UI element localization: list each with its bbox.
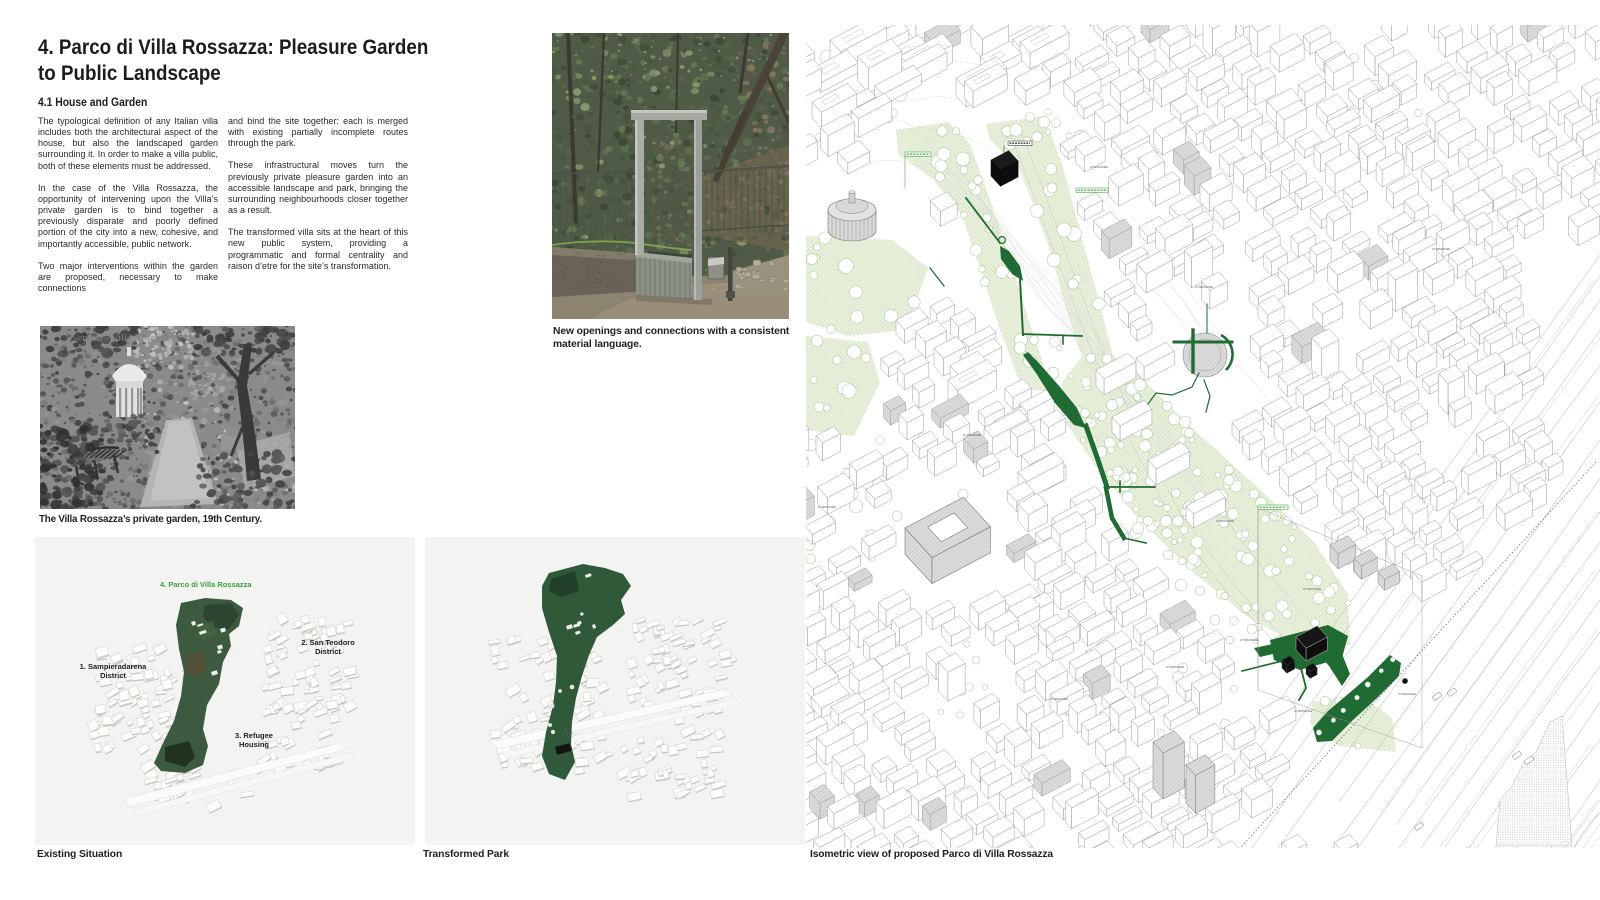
svg-text:Genova - Villa Rosazza: Genova - Villa Rosazza bbox=[70, 333, 170, 344]
